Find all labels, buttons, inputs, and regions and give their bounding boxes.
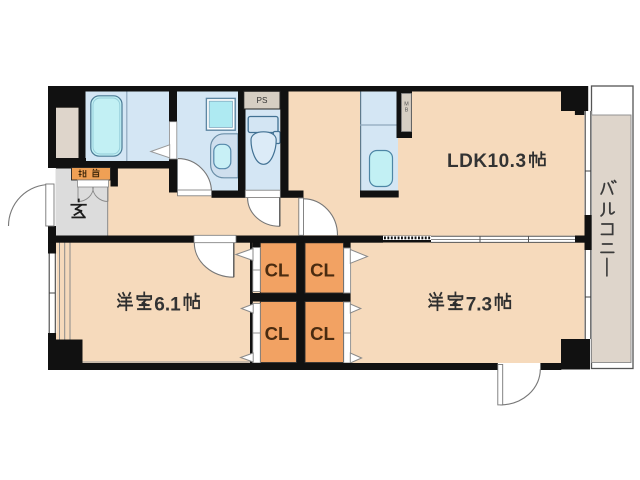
svg-text:B: B xyxy=(405,108,409,114)
svg-text:CL: CL xyxy=(265,323,290,344)
svg-text:7.3: 7.3 xyxy=(466,294,492,315)
svg-text:PS: PS xyxy=(257,96,268,105)
svg-text:6.1: 6.1 xyxy=(154,294,181,315)
svg-text:LDK10.3: LDK10.3 xyxy=(447,151,527,172)
svg-text:CL: CL xyxy=(310,323,335,344)
svg-text:CL: CL xyxy=(265,260,290,281)
svg-text:CL: CL xyxy=(310,260,335,281)
